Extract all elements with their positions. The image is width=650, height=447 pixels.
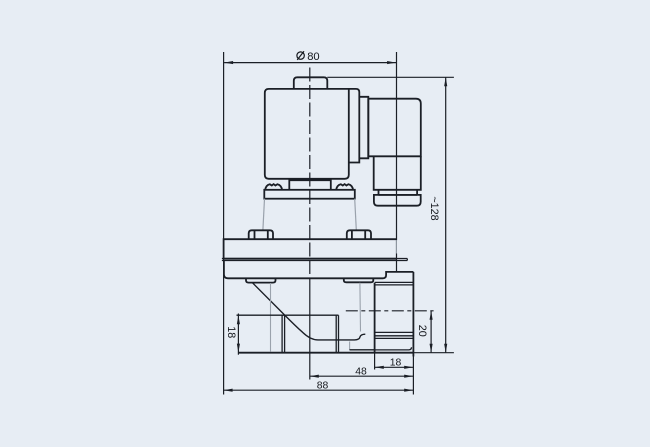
svg-text:18: 18: [390, 358, 402, 369]
svg-text:20: 20: [416, 325, 428, 337]
svg-text:48: 48: [355, 367, 367, 378]
svg-text:88: 88: [317, 381, 329, 392]
svg-text:~128: ~128: [428, 196, 440, 220]
svg-text:80: 80: [307, 51, 319, 63]
svg-text:18: 18: [225, 326, 237, 338]
